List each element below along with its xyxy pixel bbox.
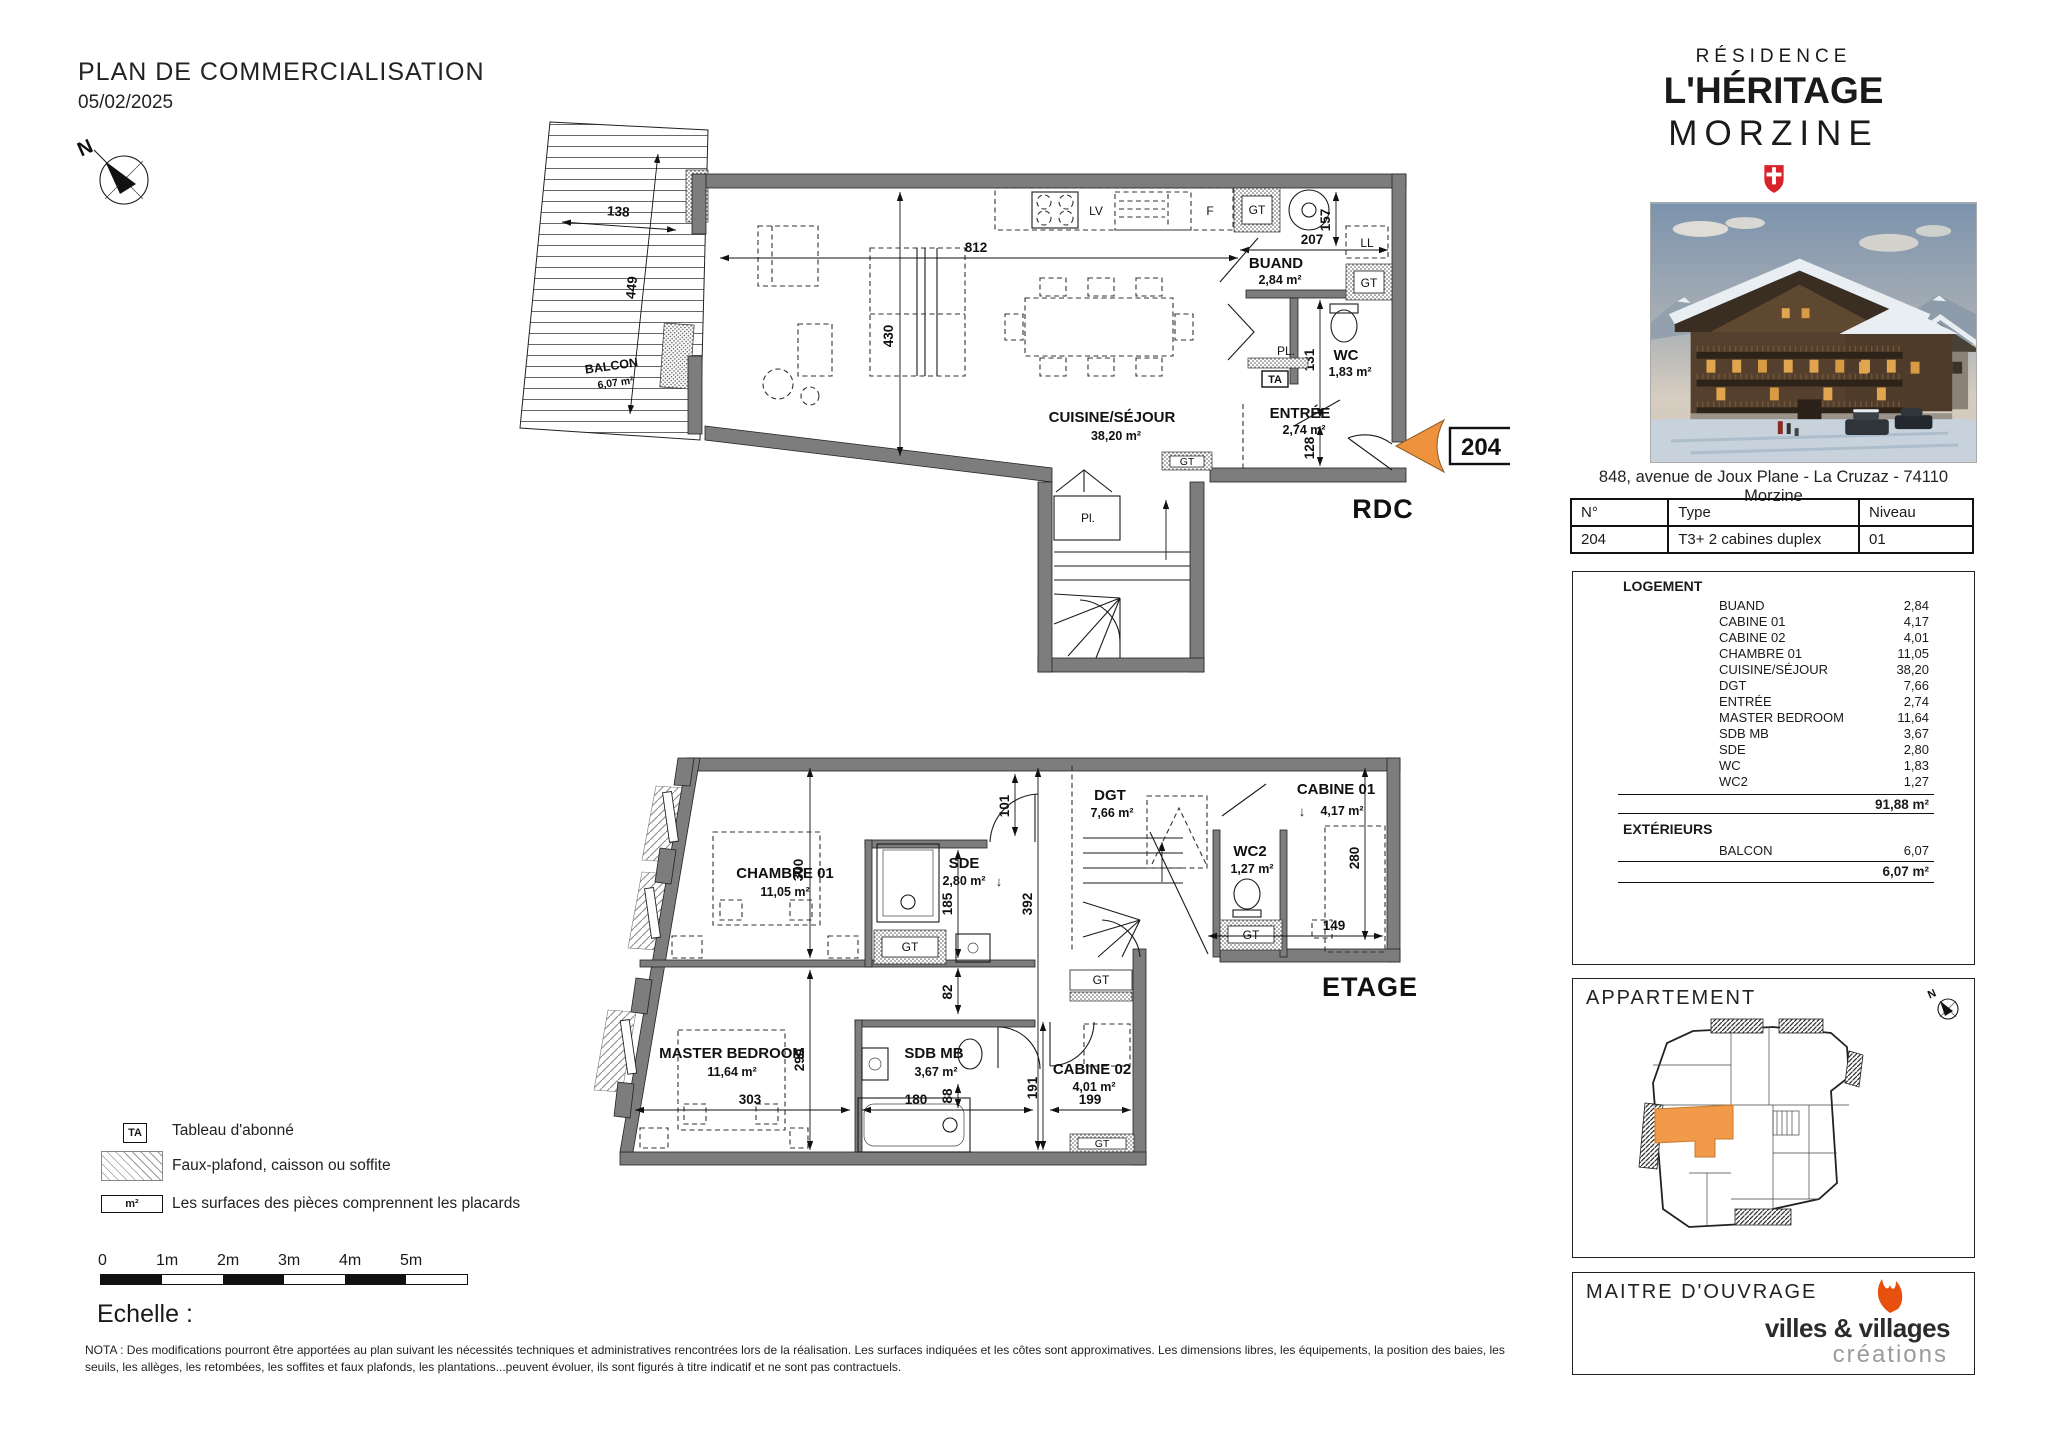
surface-label: WC2 (1719, 774, 1748, 789)
divider (1618, 813, 1934, 814)
unit-table-header-level: Niveau (1859, 499, 1973, 526)
room-area-cuisine: 38,20 m² (1091, 429, 1141, 443)
floor-label-rdc: RDC (1352, 494, 1414, 524)
floor-plan-rdc: BALCON 6,07 m² 138 449 LV (420, 108, 1510, 708)
surface-label: BUAND (1719, 598, 1765, 613)
room-area-cabine02: 4,01 m² (1072, 1080, 1115, 1094)
room-label-buand: BUAND (1249, 255, 1303, 272)
compass-icon: N (68, 118, 178, 228)
room-label-wc: WC (1334, 347, 1359, 364)
dim-812: 812 (965, 240, 988, 255)
apartment-box-title: APPARTEMENT (1586, 987, 1756, 1010)
dim-430: 430 (881, 325, 896, 348)
logo-flame-icon (1868, 1275, 1912, 1315)
etage-cabine02: 191 199 CABINE 02 4,01 m² GT (1025, 1022, 1134, 1152)
legend-m2-symbol: m² (101, 1195, 163, 1213)
appliance-label-gt3: GT (1180, 456, 1195, 468)
rdc-stairs: Pl. (1054, 470, 1190, 658)
scale-tick: 0 (98, 1252, 107, 1270)
rdc-entree: ENTRÉE 2,74 m² 128 (1243, 404, 1392, 470)
surface-label: SDB MB (1719, 726, 1769, 741)
etage-wc2: WC2 1,27 m² GT (1220, 784, 1282, 950)
dim-101: 101 (997, 794, 1012, 817)
unit-marker-204: 204 (1396, 420, 1510, 472)
compass-north-label: N (74, 135, 96, 161)
label-pl-small: Pl. (1081, 511, 1095, 525)
scale-tick: 5m (400, 1252, 422, 1270)
mini-compass-icon: N (1926, 985, 1966, 1025)
savoie-shield-icon (1763, 164, 1785, 194)
surface-label: DGT (1719, 678, 1746, 693)
surface-value: 1,83 (1904, 758, 1929, 773)
nota-text: NOTA : Des modifications pourront être a… (85, 1342, 1530, 1377)
label-pl: PL. (1277, 344, 1295, 358)
legend-hatch-swatch (101, 1151, 163, 1181)
dim-157: 157 (1318, 209, 1333, 232)
scale-tick: 1m (156, 1252, 178, 1270)
surface-value: 38,20 (1896, 662, 1929, 677)
dim-128: 128 (1302, 436, 1317, 459)
rdc-closet-ta: PL. TA (1248, 344, 1308, 387)
brand-name: L'HÉRITAGE (1572, 70, 1975, 112)
dim-185: 185 (940, 892, 955, 915)
scale-segment (284, 1275, 345, 1284)
cabine01-down-arrow: ↓ (1299, 804, 1306, 819)
room-label-sdbmb: SDB MB (904, 1045, 963, 1062)
scale-tick: 3m (278, 1252, 300, 1270)
unit-table-header-num: N° (1571, 499, 1668, 526)
room-label-chambre01: CHAMBRE 01 (736, 865, 834, 882)
appliance-label-gt5: GT (1243, 928, 1260, 942)
appliance-label-f: F (1206, 204, 1213, 218)
room-label-cuisine: CUISINE/SÉJOUR (1049, 409, 1176, 426)
rdc-balcony: BALCON 6,07 m² 138 449 (520, 122, 708, 440)
plan-document: PLAN DE COMMERCIALISATION 05/02/2025 N B… (0, 0, 2048, 1448)
dim-290: 290 (792, 1049, 807, 1072)
surface-value: 11,64 (1897, 710, 1929, 725)
unit-table-header-type: Type (1668, 499, 1859, 526)
room-area-dgt: 7,66 m² (1090, 806, 1133, 820)
room-label-master: MASTER BEDROOM (659, 1045, 805, 1062)
page-title: PLAN DE COMMERCIALISATION (78, 58, 485, 87)
surface-value: 4,01 (1904, 630, 1929, 645)
surface-label: BALCON (1719, 843, 1772, 858)
surface-value: 11,05 (1897, 646, 1929, 661)
rdc-kitchen: LV F GT (995, 188, 1329, 232)
dim-207: 207 (1301, 232, 1324, 247)
surface-row: WC21,27 (1719, 774, 1929, 789)
scale-ticks: 0 1m 2m 3m 4m 5m (98, 1252, 518, 1272)
echelle-label: Echelle : (97, 1300, 193, 1329)
scale-tick: 4m (339, 1252, 361, 1270)
surface-row: SDE2,80 (1719, 742, 1929, 757)
room-area-entree: 2,74 m² (1282, 423, 1325, 437)
room-area-buand: 2,84 m² (1258, 273, 1301, 287)
legend-hatch-label: Faux-plafond, caisson ou soffite (172, 1157, 391, 1175)
unit-table-header-row: N° Type Niveau (1571, 499, 1973, 526)
etage-dgt-stairs: DGT 7,66 m² (1072, 766, 1208, 957)
surface-value: 2,80 (1904, 742, 1929, 757)
room-label-dgt: DGT (1094, 787, 1126, 804)
divider (1618, 882, 1934, 883)
room-area-wc2: 1,27 m² (1230, 862, 1273, 876)
apartment-locator-box: APPARTEMENT N (1572, 978, 1975, 1258)
owner-box-title: MAITRE D'OUVRAGE (1586, 1281, 1817, 1304)
mini-compass-north: N (1926, 987, 1938, 1001)
dim-82: 82 (940, 984, 955, 999)
dim-280: 280 (1347, 847, 1362, 870)
surface-row: BUAND2,84 (1719, 598, 1929, 613)
room-area-cabine01: 4,17 m² (1320, 804, 1363, 818)
rdc-living-furniture: CUISINE/SÉJOUR 38,20 m² 812 430 GT (720, 192, 1238, 470)
scale-bar (100, 1274, 468, 1285)
building-photo-render (1651, 203, 1976, 462)
dim-138: 138 (607, 203, 631, 220)
scale-segment (101, 1275, 162, 1284)
surface-row: WC1,83 (1719, 758, 1929, 773)
scale-tick: 2m (217, 1252, 239, 1270)
etage-sde: SDE 2,80 m² ↓ 101 185 GT 82 (874, 774, 1038, 1014)
dim-449: 449 (623, 276, 640, 300)
unit-level: 01 (1859, 526, 1973, 553)
room-label-entree: ENTRÉE (1270, 405, 1331, 422)
etage-chambre01: CHAMBRE 01 11,05 m² 300 (672, 768, 858, 958)
building-photo (1650, 202, 1977, 463)
plan-date: 05/02/2025 (78, 92, 173, 114)
surface-row: CUISINE/SÉJOUR38,20 (1719, 662, 1929, 677)
floor-plan-etage: CHAMBRE 01 11,05 m² 300 SDE 2,80 m² ↓ 10… (450, 752, 1450, 1242)
legend-ta-symbol: TA (123, 1123, 147, 1143)
surface-value: 3,67 (1904, 726, 1929, 741)
surface-label: CHAMBRE 01 (1719, 646, 1802, 661)
surface-row: SDB MB3,67 (1719, 726, 1929, 741)
unit-marker-number: 204 (1461, 434, 1502, 461)
sde-down-arrow: ↓ (996, 874, 1003, 889)
dim-149: 149 (1323, 918, 1346, 933)
room-label-cabine02: CABINE 02 (1053, 1061, 1131, 1078)
surface-label: WC (1719, 758, 1741, 773)
surfaces-box: LOGEMENT BUAND2,84 CABINE 014,17 CABINE … (1572, 571, 1975, 965)
dim-199: 199 (1079, 1092, 1102, 1107)
room-label-sde: SDE (949, 855, 980, 872)
room-area-sdbmb: 3,67 m² (914, 1065, 957, 1079)
unit-table-data-row: 204 T3+ 2 cabines duplex 01 (1571, 526, 1973, 553)
surface-value: 6,07 (1904, 843, 1929, 858)
logo-creations: créations (1833, 1341, 1948, 1369)
room-area-master: 11,64 m² (707, 1065, 756, 1079)
surface-row: CABINE 014,17 (1719, 614, 1929, 629)
legend-m2-label: Les surfaces des pièces comprennent les … (172, 1195, 520, 1213)
appliance-label-lv: LV (1089, 204, 1103, 218)
appliance-label-gt6: GT (1093, 973, 1110, 987)
unit-table: N° Type Niveau 204 T3+ 2 cabines duplex … (1570, 498, 1974, 554)
unit-type: T3+ 2 cabines duplex (1668, 526, 1859, 553)
appliance-label-gt2: GT (1361, 276, 1378, 290)
etage-sdbmb: SDB MB 3,67 m² 180 88 (858, 1027, 1040, 1152)
brand-city: MORZINE (1572, 114, 1975, 154)
dim-180: 180 (905, 1092, 928, 1107)
brand-residence: RÉSIDENCE (1572, 46, 1975, 68)
surface-value: 2,74 (1904, 694, 1929, 709)
etage-gt-mid: GT (1070, 970, 1132, 1001)
divider (1618, 861, 1934, 862)
surface-value: 1,27 (1904, 774, 1929, 789)
room-area-sde: 2,80 m² (942, 874, 985, 888)
surface-value: 2,84 (1904, 598, 1929, 613)
scale-segment (345, 1275, 406, 1284)
exterieurs-total: 6,07 m² (1882, 864, 1929, 879)
legend-ta-label: Tableau d'abonné (172, 1122, 294, 1140)
scale-segment (406, 1275, 467, 1284)
divider (1618, 794, 1934, 795)
owner-box: MAITRE D'OUVRAGE villes & villages créat… (1572, 1272, 1975, 1375)
site-plan-mini (1623, 1013, 1923, 1253)
appliance-label-gt7: GT (1095, 1138, 1110, 1150)
unit-number: 204 (1571, 526, 1668, 553)
floor-label-etage: ETAGE (1322, 972, 1418, 1002)
dim-392: 392 (1020, 893, 1035, 916)
logo-villes-villages: villes & villages (1765, 1313, 1950, 1344)
exterieurs-title: EXTÉRIEURS (1623, 821, 1712, 837)
dim-300: 300 (791, 859, 806, 882)
appliance-label-ll: LL (1360, 236, 1374, 250)
dim-191: 191 (1025, 1076, 1040, 1099)
etage-master: MASTER BEDROOM 11,64 m² 290 303 (635, 970, 850, 1150)
surface-label: CABINE 01 (1719, 614, 1785, 629)
surface-row: CHAMBRE 0111,05 (1719, 646, 1929, 661)
logement-title: LOGEMENT (1623, 578, 1702, 594)
surface-value: 7,66 (1904, 678, 1929, 693)
room-label-cabine01: CABINE 01 (1297, 781, 1375, 798)
surface-label: CUISINE/SÉJOUR (1719, 662, 1828, 677)
surface-row: DGT7,66 (1719, 678, 1929, 693)
room-area-wc: 1,83 m² (1328, 365, 1371, 379)
room-label-wc2: WC2 (1233, 843, 1266, 860)
surface-value: 4,17 (1904, 614, 1929, 629)
scale-segment (223, 1275, 284, 1284)
scale-segment (162, 1275, 223, 1284)
dim-303: 303 (739, 1092, 762, 1107)
logement-total: 91,88 m² (1875, 797, 1929, 812)
surface-row: MASTER BEDROOM11,64 (1719, 710, 1929, 725)
room-area-chambre01: 11,05 m² (760, 885, 809, 899)
surface-label: MASTER BEDROOM (1719, 710, 1844, 725)
surface-label: SDE (1719, 742, 1746, 757)
surface-row: CABINE 024,01 (1719, 630, 1929, 645)
appliance-label-gt4: GT (902, 940, 919, 954)
etage-walls (614, 758, 1400, 1165)
label-ta: TA (1268, 374, 1282, 386)
surface-row: BALCON6,07 (1719, 843, 1929, 858)
surface-label: CABINE 02 (1719, 630, 1785, 645)
appliance-label-gt: GT (1249, 203, 1266, 217)
dim-88: 88 (940, 1088, 955, 1104)
surface-row: ENTRÉE2,74 (1719, 694, 1929, 709)
surface-label: ENTRÉE (1719, 694, 1772, 709)
